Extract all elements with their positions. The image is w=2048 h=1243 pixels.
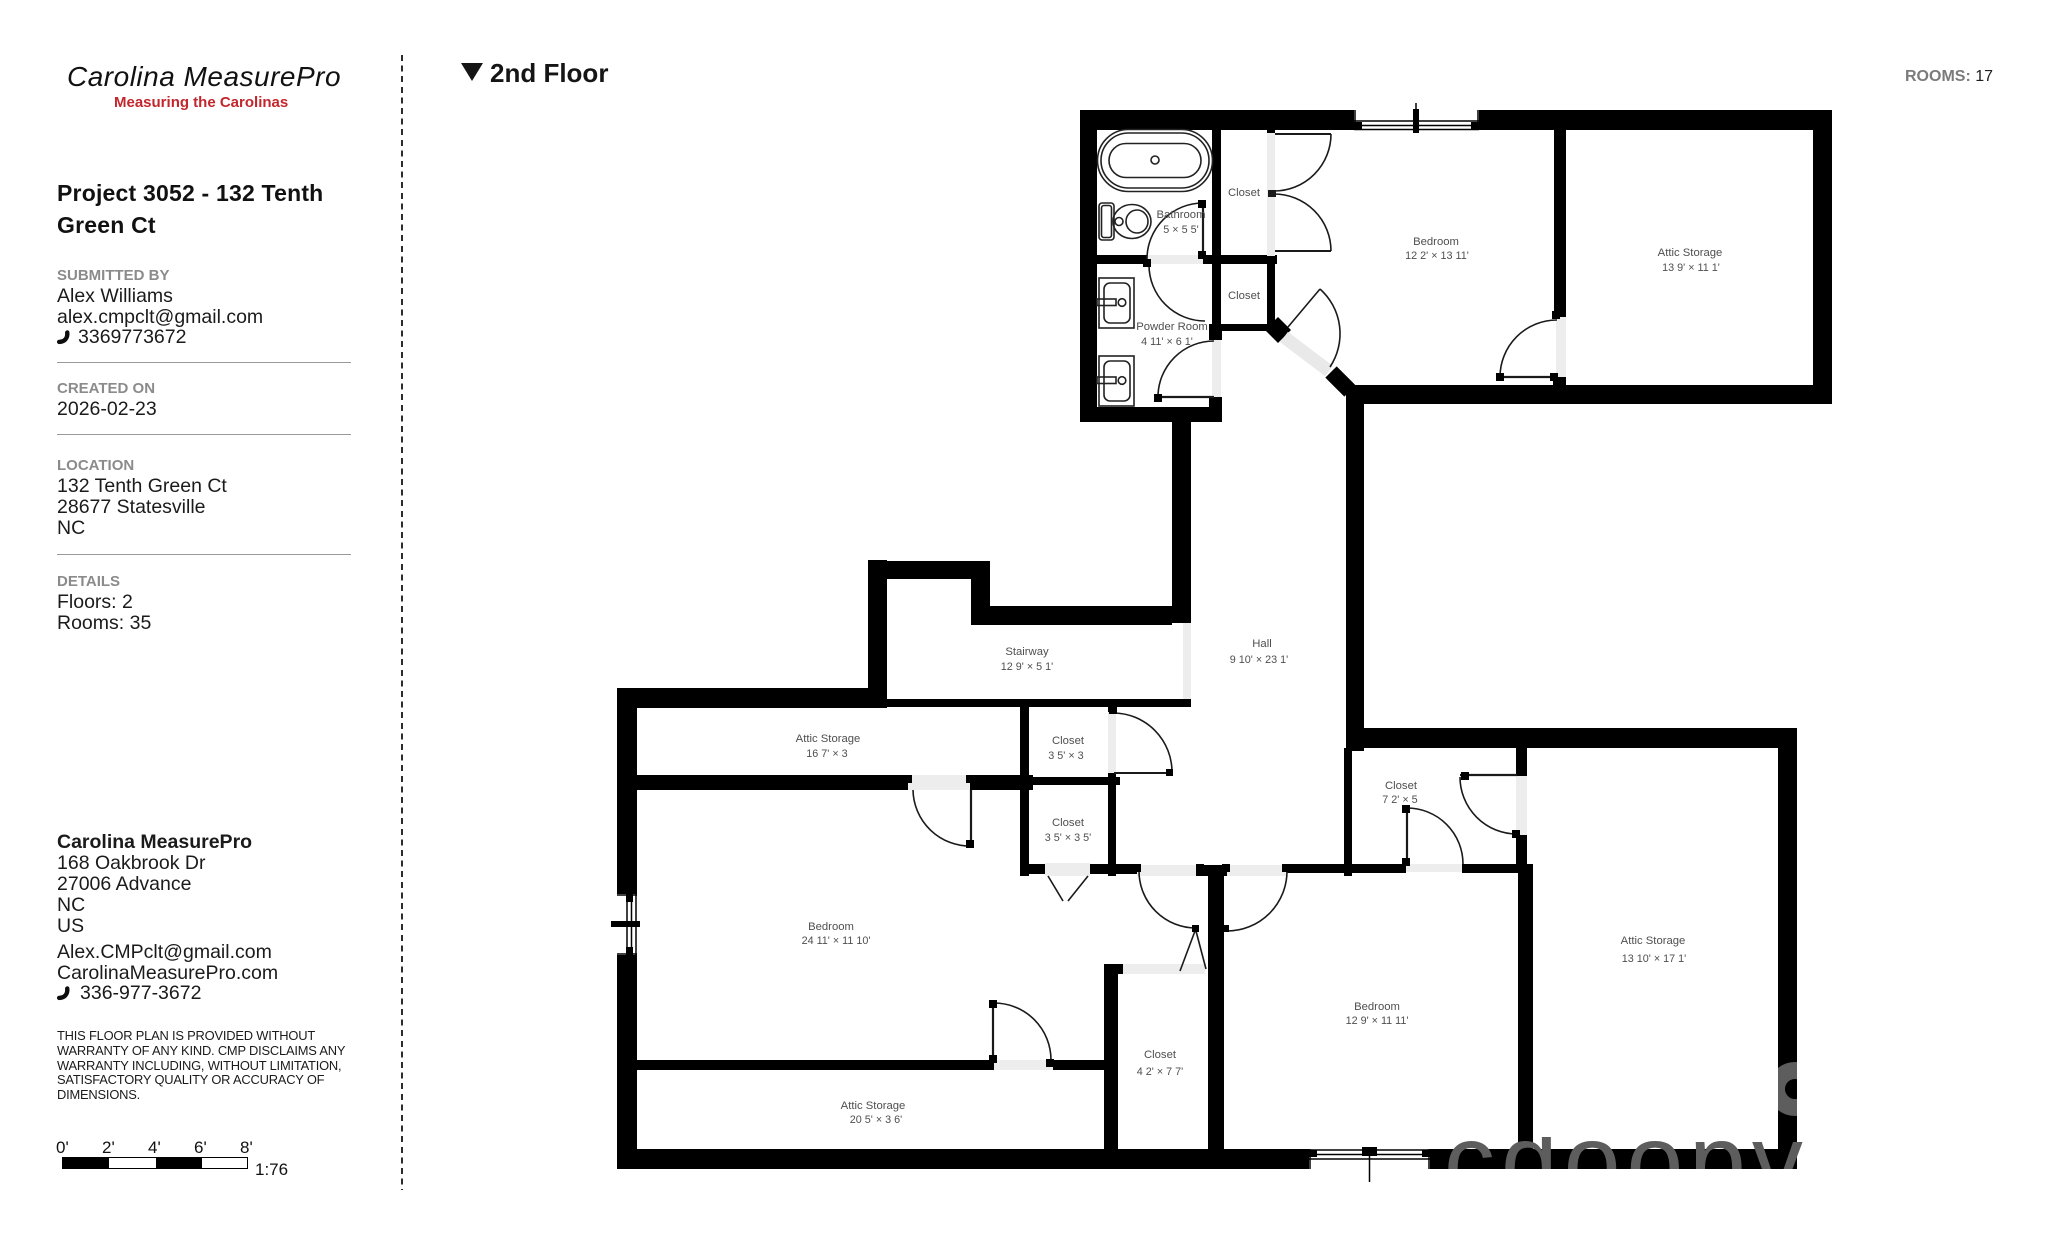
svg-text:9 10' × 23 1': 9 10' × 23 1' [1230, 654, 1288, 666]
svg-text:Closet: Closet [1052, 817, 1085, 829]
svg-text:4 11' × 6 1': 4 11' × 6 1' [1141, 336, 1193, 348]
svg-text:Closet: Closet [1228, 290, 1261, 302]
svg-text:Attic Storage: Attic Storage [796, 733, 861, 745]
svg-text:cdoopv: cdoopv [1444, 1104, 1809, 1218]
svg-text:Closet: Closet [1052, 735, 1085, 747]
svg-text:4 2' × 7 7': 4 2' × 7 7' [1137, 1066, 1183, 1078]
svg-text:3 5' × 3: 3 5' × 3 [1048, 750, 1083, 762]
svg-text:7 2' × 5: 7 2' × 5 [1382, 794, 1417, 806]
svg-text:12 9' × 11 11': 12 9' × 11 11' [1346, 1015, 1409, 1027]
svg-text:Closet: Closet [1385, 780, 1418, 792]
svg-text:20 5' × 3 6': 20 5' × 3 6' [850, 1114, 902, 1126]
svg-text:16 7' × 3: 16 7' × 3 [806, 748, 847, 760]
svg-text:Stairway: Stairway [1005, 646, 1049, 658]
svg-text:Closet: Closet [1228, 187, 1261, 199]
svg-text:5 × 5 5': 5 × 5 5' [1163, 224, 1198, 236]
svg-text:Bedroom: Bedroom [1354, 1001, 1400, 1013]
svg-text:Attic Storage: Attic Storage [1658, 247, 1723, 259]
svg-text:Attic Storage: Attic Storage [841, 1100, 906, 1112]
svg-text:Powder Room: Powder Room [1136, 321, 1208, 333]
svg-text:Bathroom: Bathroom [1157, 209, 1206, 221]
svg-text:Attic Storage: Attic Storage [1621, 935, 1686, 947]
svg-text:13 10' × 17 1': 13 10' × 17 1' [1622, 953, 1686, 965]
svg-text:Closet: Closet [1144, 1049, 1177, 1061]
svg-text:12 9' × 5 1': 12 9' × 5 1' [1001, 661, 1053, 673]
svg-text:24 11' × 11 10': 24 11' × 11 10' [802, 935, 871, 947]
svg-text:3 5' × 3 5': 3 5' × 3 5' [1045, 832, 1091, 844]
svg-text:Bedroom: Bedroom [808, 921, 854, 933]
svg-text:13 9' × 11 1': 13 9' × 11 1' [1662, 262, 1720, 274]
svg-text:12 2' × 13 11': 12 2' × 13 11' [1405, 250, 1469, 262]
svg-text:Hall: Hall [1252, 638, 1271, 650]
svg-text:Bedroom: Bedroom [1413, 236, 1459, 248]
